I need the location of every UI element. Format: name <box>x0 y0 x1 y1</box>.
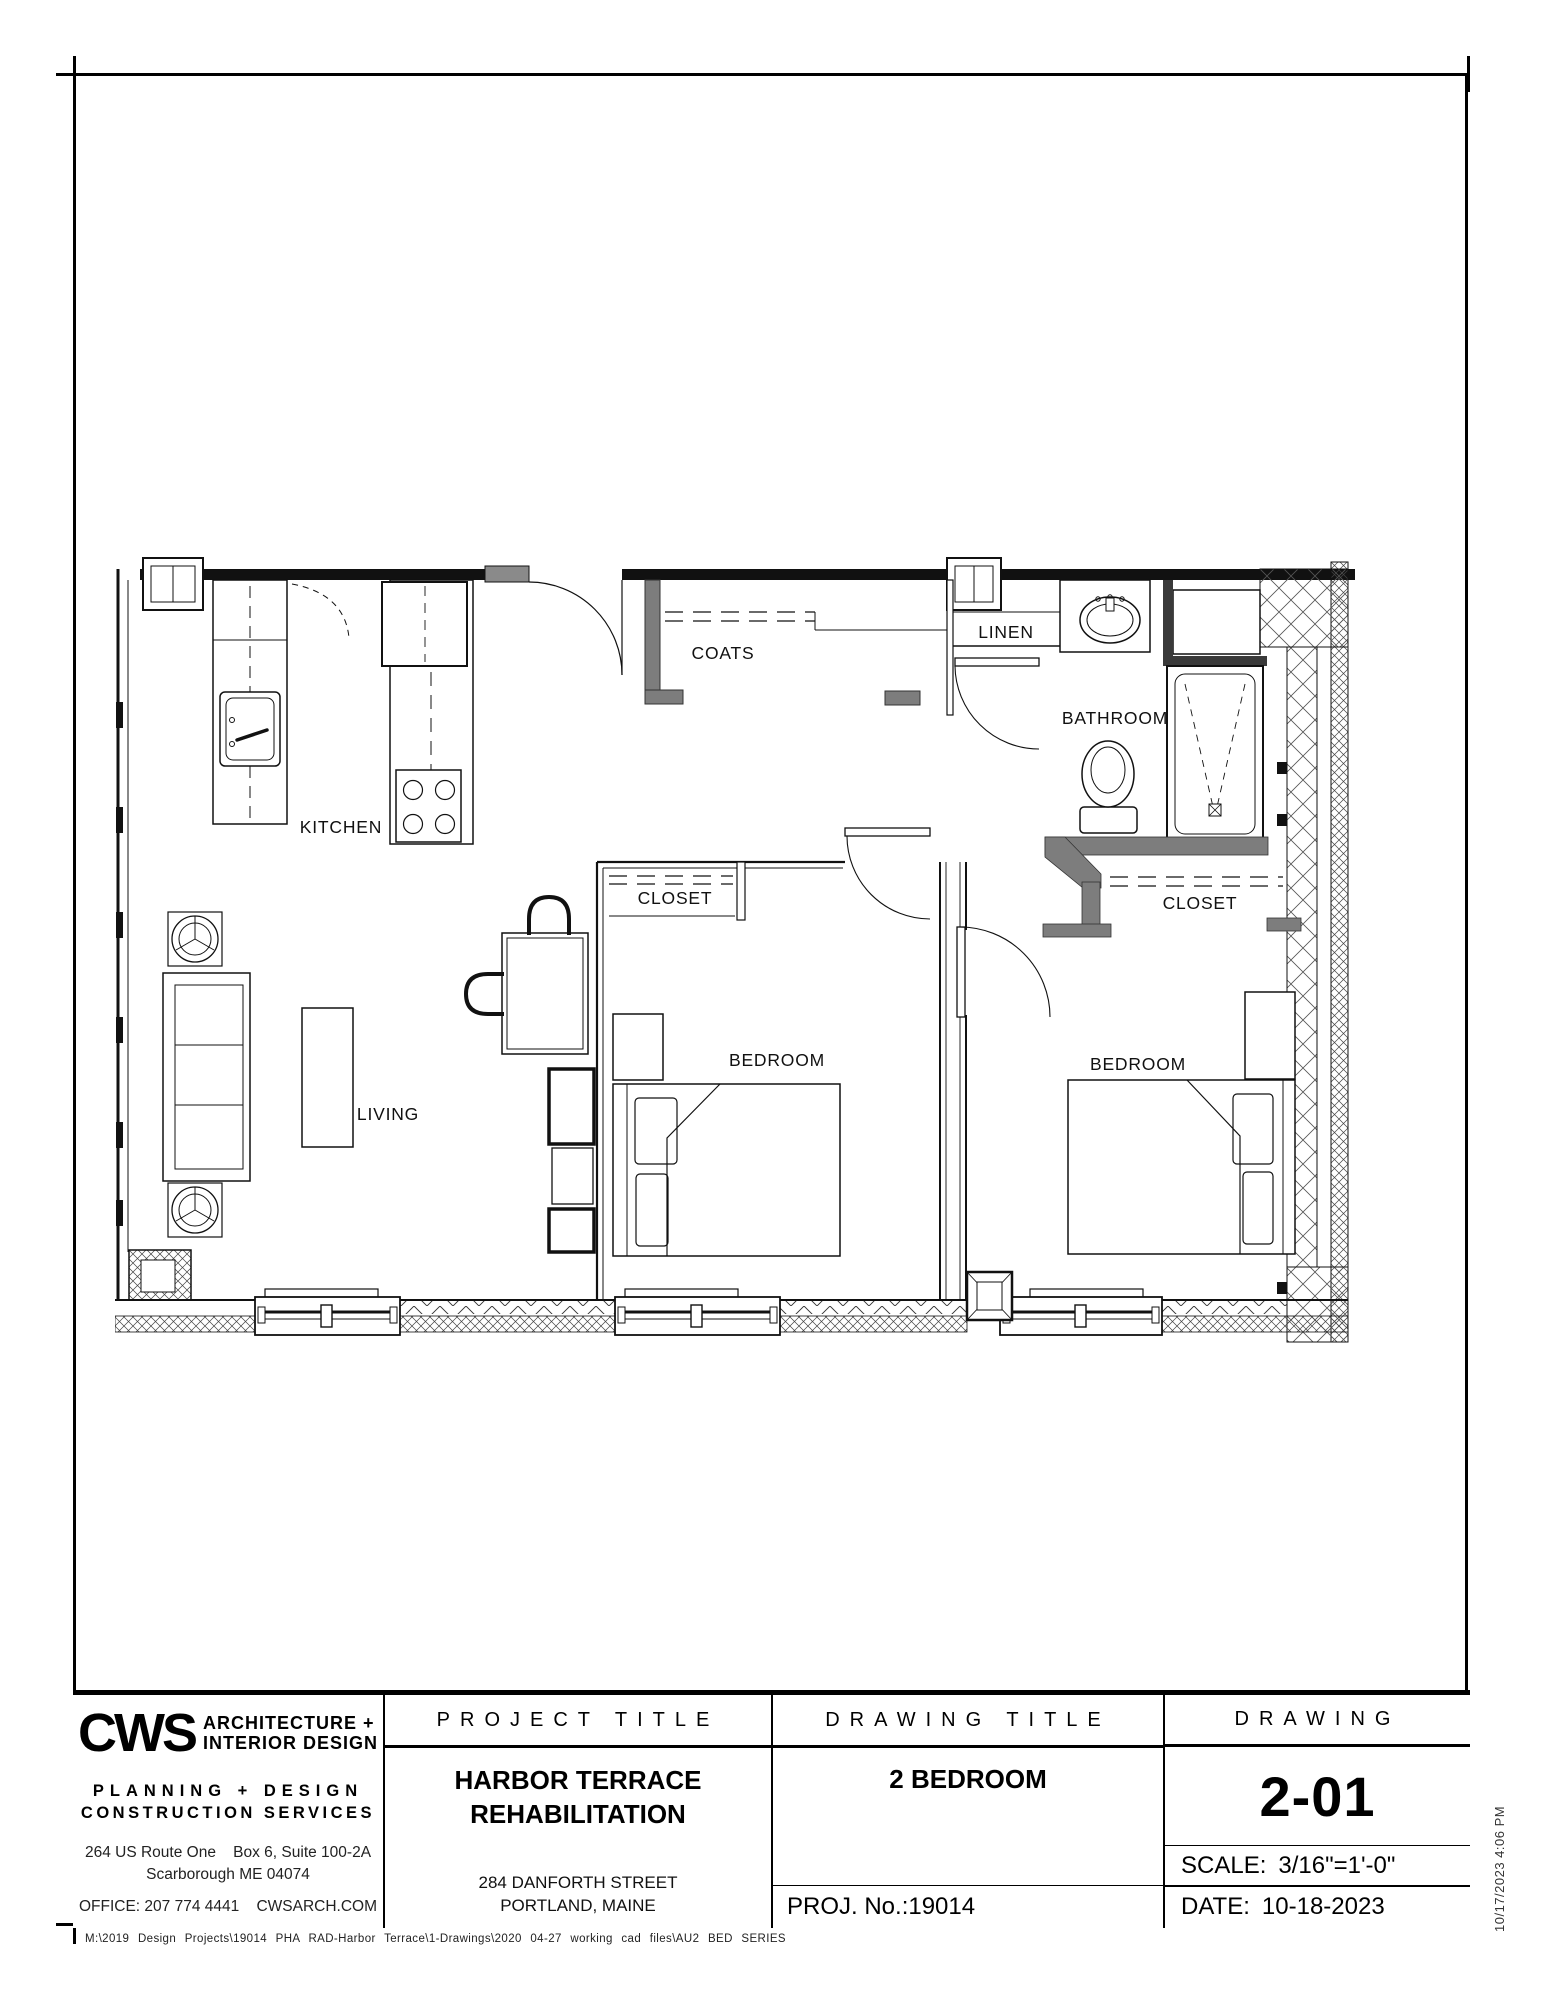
shower-wall <box>1163 580 1173 664</box>
room-label-kitchen: KITCHEN <box>300 817 382 837</box>
firm-services-line2: CONSTRUCTION SERVICES <box>81 1802 375 1824</box>
drawing-title-header: DRAWING TITLE <box>773 1695 1163 1748</box>
stove <box>396 770 461 842</box>
room-label-linen: LINEN <box>978 622 1034 642</box>
project-number: PROJ. No.:19014 <box>773 1885 1163 1928</box>
title-block: CWS ARCHITECTURE + INTERIOR DESIGN PLANN… <box>73 1690 1470 1928</box>
nightstand <box>1245 992 1295 1079</box>
kitchen-area: KITCHEN <box>213 580 473 844</box>
room-label-closet1: CLOSET <box>638 888 713 908</box>
firm-address-line2: Scarborough ME 04074 <box>85 1864 371 1886</box>
scale-row: SCALE: 3/16"=1'-0" <box>1165 1845 1470 1884</box>
bedroom1-area: CLOSET BEDROOM <box>549 828 930 1256</box>
top-wall-window-2 <box>947 558 1001 610</box>
living-area: LIVING <box>163 897 588 1237</box>
living-window <box>255 1289 400 1335</box>
shower <box>1167 666 1263 842</box>
bedroom2-bed <box>1068 1080 1295 1254</box>
room-label-coats: COATS <box>692 643 755 663</box>
floor-plan: KITCHEN COATS LINEN <box>115 552 1365 1352</box>
file-path: M:\2019 Design Projects\19014 PHA RAD-Ha… <box>85 1933 786 1945</box>
top-wall-window <box>143 558 203 610</box>
dining-chair <box>529 897 569 935</box>
bottom-wall-column <box>967 1272 1012 1320</box>
room-label-bedroom2: BEDROOM <box>1090 1054 1186 1074</box>
project-name-line1: HARBOR TERRACE <box>385 1764 771 1798</box>
bedroom1-door <box>845 828 930 919</box>
nightstand <box>613 1014 663 1080</box>
linen-closet: LINEN <box>953 612 1060 646</box>
drawing-header: DRAWING <box>1165 1695 1470 1747</box>
room-label-bedroom1: BEDROOM <box>729 1050 825 1070</box>
drawing-title: 2 BEDROOM <box>773 1764 1163 1795</box>
firm-cell: CWS ARCHITECTURE + INTERIOR DESIGN PLANN… <box>73 1695 383 1928</box>
firm-name-line2: INTERIOR DESIGN <box>203 1733 378 1754</box>
bedroom2-area: BEDROOM <box>957 927 1295 1254</box>
bath-niche <box>1173 590 1260 654</box>
pillow <box>1233 1094 1273 1164</box>
pillow <box>636 1174 668 1246</box>
living-builtins <box>549 1069 594 1252</box>
scale-value: 3/16"=1'-0" <box>1278 1852 1395 1880</box>
date-row: DATE: 10-18-2023 <box>1165 1885 1470 1928</box>
drawing-title-cell: DRAWING TITLE 2 BEDROOM PROJ. No.:19014 <box>771 1695 1163 1928</box>
dining-chair <box>466 974 504 1014</box>
toilet <box>1080 741 1137 833</box>
project-title-cell: PROJECT TITLE HARBOR TERRACE REHABILITAT… <box>383 1695 771 1928</box>
project-title-header: PROJECT TITLE <box>385 1695 771 1748</box>
firm-name-line1: ARCHITECTURE + <box>203 1713 378 1734</box>
border-tick <box>1467 56 1470 92</box>
end-table <box>168 912 222 966</box>
drawing-cell: DRAWING 2-01 SCALE: 3/16"=1'-0" DATE: 10… <box>1163 1695 1470 1928</box>
room-label-bathroom: BATHROOM <box>1062 708 1168 728</box>
entry-door <box>485 566 622 675</box>
pillow <box>635 1098 677 1164</box>
firm-contact: OFFICE: 207 774 4441 CWSARCH.COM <box>79 1898 377 1916</box>
bedroom2-door <box>957 927 1050 1017</box>
bathroom-sink <box>1060 580 1150 652</box>
drawing-number: 2-01 <box>1259 1764 1375 1829</box>
firm-logo: CWS <box>78 1709 195 1758</box>
cabinet-door-swing <box>292 584 349 638</box>
project-name-line2: REHABILITATION <box>385 1798 771 1832</box>
border-tick <box>73 56 76 92</box>
bathroom-door <box>955 658 1039 749</box>
project-address-line1: 284 DANFORTH STREET <box>385 1872 771 1895</box>
bedroom2-window <box>1000 1289 1162 1335</box>
bedroom2-closet: CLOSET <box>1110 877 1301 931</box>
left-exterior-wall <box>116 569 128 1300</box>
project-address-line2: PORTLAND, MAINE <box>385 1895 771 1918</box>
date-value: 10-18-2023 <box>1262 1893 1385 1921</box>
room-label-closet2: CLOSET <box>1163 893 1238 913</box>
shower-wall <box>1163 656 1267 666</box>
pillow <box>1243 1172 1273 1244</box>
coats-closet: COATS <box>645 580 953 715</box>
room-label-living: LIVING <box>357 1104 419 1124</box>
coffee-table <box>302 1008 353 1147</box>
top-exterior-wall <box>140 569 1355 580</box>
bedroom1-bed <box>613 1084 840 1256</box>
drawing-sheet: KITCHEN COATS LINEN <box>0 0 1545 2000</box>
plot-timestamp: 10/17/2023 4:06 PM <box>1492 1806 1507 1932</box>
sofa <box>163 973 250 1181</box>
end-table <box>168 1183 222 1237</box>
refrigerator <box>382 582 467 666</box>
bedroom1-window <box>615 1289 780 1335</box>
dining-table <box>466 897 588 1054</box>
date-label: DATE: <box>1181 1893 1250 1921</box>
bedroom1-closet: CLOSET <box>609 862 745 920</box>
left-wall-bump <box>129 1250 191 1300</box>
firm-services-line1: PLANNING + DESIGN <box>81 1780 375 1802</box>
scale-label: SCALE: <box>1181 1852 1266 1880</box>
kitchen-sink <box>220 692 280 766</box>
firm-address-line1: 264 US Route One Box 6, Suite 100-2A <box>85 1842 371 1864</box>
